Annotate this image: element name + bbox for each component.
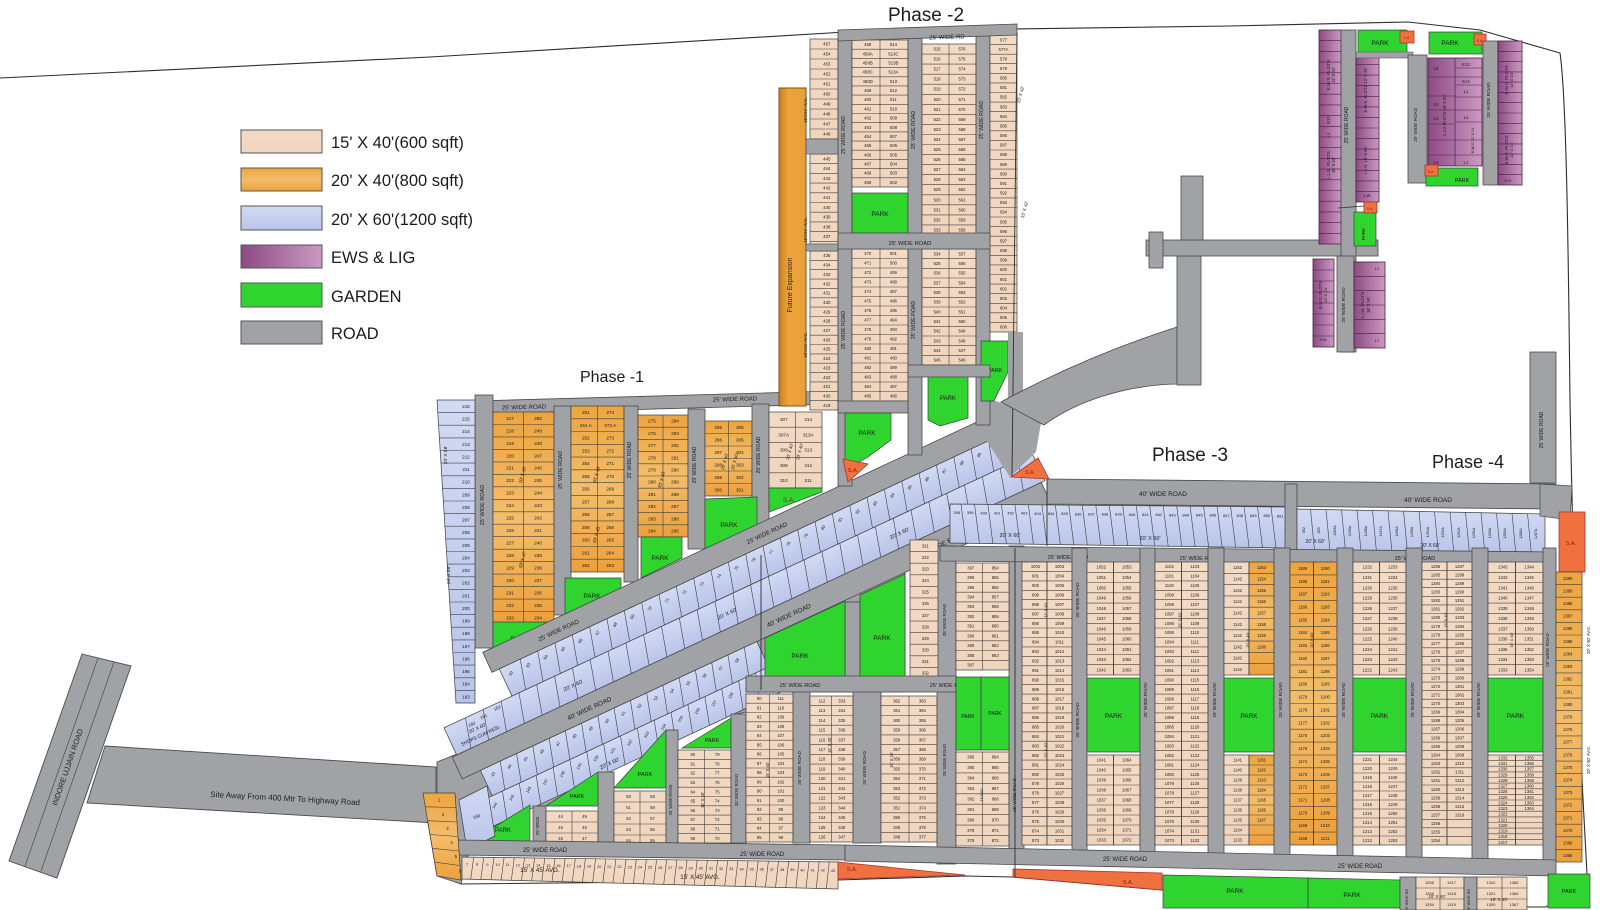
svg-text:1157: 1157 [1257,611,1267,616]
svg-text:584: 584 [1000,114,1008,119]
svg-text:25' WIDE ROAD: 25' WIDE ROAD [480,485,486,526]
svg-text:443: 443 [823,176,831,181]
svg-text:66: 66 [690,808,695,813]
svg-text:1317: 1317 [1447,880,1457,885]
svg-text:220: 220 [506,453,514,458]
svg-text:15' X 45' AVG.: 15' X 45' AVG. [520,867,560,874]
svg-text:251 A: 251 A [580,423,593,428]
svg-text:12' X 24': 12' X 24' [1509,72,1514,88]
svg-text:1223: 1223 [1363,657,1373,662]
svg-text:379: 379 [967,828,975,833]
svg-text:848: 848 [1236,513,1243,518]
svg-text:1238: 1238 [1388,616,1398,621]
svg-text:388: 388 [967,653,975,658]
svg-text:1044: 1044 [1097,647,1107,652]
svg-text:327: 327 [922,613,930,618]
svg-text:873: 873 [1032,838,1040,843]
svg-text:S.A.: S.A. [1367,207,1373,211]
svg-text:25' WIDE ROAD: 25' WIDE ROAD [1476,682,1482,718]
svg-text:563: 563 [959,177,967,182]
svg-text:564: 564 [959,167,967,172]
svg-text:374: 374 [919,805,927,810]
svg-text:274: 274 [606,410,614,415]
svg-text:31: 31 [709,867,713,871]
svg-text:1240: 1240 [1388,637,1398,642]
svg-text:1168: 1168 [1298,836,1308,841]
svg-text:861: 861 [992,633,1000,638]
svg-text:444: 444 [823,166,831,171]
svg-text:226: 226 [506,528,514,533]
svg-text:1325: 1325 [1498,795,1508,800]
svg-text:1186: 1186 [1298,605,1308,610]
svg-text:275: 275 [648,419,656,424]
svg-text:1269: 1269 [1431,710,1441,715]
svg-text:119: 119 [819,767,826,772]
svg-text:102: 102 [777,779,785,784]
svg-text:1020: 1020 [1055,725,1065,730]
svg-text:1090: 1090 [1165,677,1175,682]
svg-text:1333: 1333 [1498,668,1508,673]
svg-text:244: 244 [534,491,542,496]
svg-text:842: 842 [1156,512,1163,517]
svg-text:83: 83 [757,724,762,729]
svg-text:501: 501 [890,251,898,256]
svg-text:1195: 1195 [1321,630,1331,635]
svg-text:1164: 1164 [1257,788,1267,793]
svg-text:1115: 1115 [1190,677,1199,682]
svg-text:26: 26 [658,866,662,870]
svg-text:12' X 24': 12' X 24' [1323,287,1328,303]
svg-text:1351: 1351 [1525,637,1535,642]
svg-text:400: 400 [980,510,987,515]
svg-text:L15: L15 [1364,193,1372,198]
svg-text:285: 285 [671,529,679,534]
svg-text:309: 309 [780,463,788,468]
svg-text:107: 107 [777,733,785,738]
svg-text:510: 510 [890,106,898,111]
svg-text:1218: 1218 [1363,784,1373,789]
svg-text:354: 354 [893,776,901,781]
svg-text:25' WIDE ROAD: 25' WIDE ROAD [841,116,847,154]
svg-text:1258: 1258 [1431,804,1441,809]
svg-text:569: 569 [959,117,967,122]
svg-text:1183: 1183 [1298,643,1308,648]
svg-text:859: 859 [992,614,1000,619]
svg-text:1083: 1083 [1165,744,1175,749]
svg-text:1023: 1023 [1055,753,1065,758]
svg-text:338: 338 [838,747,846,752]
svg-text:526: 526 [934,157,942,162]
svg-text:248: 248 [534,441,542,446]
svg-text:34: 34 [739,867,743,871]
svg-text:117: 117 [819,747,826,752]
svg-text:506: 506 [890,143,898,148]
svg-text:15' X 40': 15' X 40' [1043,602,1048,618]
svg-text:1282: 1282 [1431,598,1441,603]
svg-text:357: 357 [893,747,901,752]
svg-text:1252: 1252 [1388,829,1398,834]
svg-text:79: 79 [715,752,720,757]
svg-text:1306: 1306 [1455,727,1465,732]
svg-text:484: 484 [864,384,872,389]
svg-text:1293: 1293 [1455,615,1465,620]
svg-text:472: 472 [864,270,872,275]
svg-text:87: 87 [757,761,762,766]
svg-text:PARK: PARK [873,635,891,642]
svg-text:536: 536 [934,271,942,276]
svg-text:891: 891 [1032,668,1040,673]
svg-text:25' WIDE ROAD: 25' WIDE ROAD [668,785,673,816]
svg-text:1243: 1243 [1388,668,1398,673]
svg-text:353: 353 [893,786,901,791]
svg-text:587: 587 [1000,143,1008,148]
svg-text:1331: 1331 [1498,761,1508,766]
svg-text:1081: 1081 [1165,762,1175,767]
svg-text:888: 888 [1032,696,1040,701]
svg-text:1095: 1095 [1165,630,1175,635]
svg-text:283: 283 [648,516,656,521]
svg-text:78: 78 [715,761,720,766]
svg-text:109: 109 [777,715,785,720]
svg-text:514: 514 [890,42,898,47]
svg-text:115: 115 [819,728,826,733]
svg-text:62: 62 [690,771,695,776]
svg-text:15'X43' AVG.: 15'X43' AVG. [803,332,808,358]
svg-text:589: 589 [1000,162,1008,167]
svg-text:577A: 577A [999,47,1009,52]
svg-text:19: 19 [587,865,591,869]
svg-text:1287A: 1287A [1534,528,1538,539]
svg-text:1318: 1318 [1447,891,1457,896]
svg-text:1069: 1069 [1122,808,1132,813]
svg-text:1289: 1289 [1455,581,1465,586]
svg-text:296: 296 [714,437,722,442]
svg-text:238: 238 [534,566,542,571]
svg-text:421: 421 [823,384,831,389]
svg-text:1297: 1297 [1455,650,1465,655]
svg-text:838: 838 [1102,512,1109,517]
svg-text:1265: 1265 [1431,744,1441,749]
svg-text:1166: 1166 [1257,808,1267,813]
svg-text:523: 523 [934,127,942,132]
svg-text:449: 449 [823,102,831,107]
svg-text:198: 198 [462,631,470,636]
svg-text:195: 195 [462,669,470,674]
svg-text:574: 574 [959,67,967,72]
svg-text:1266: 1266 [1431,735,1441,740]
svg-text:213: 213 [462,442,470,447]
svg-text:20' X 50' AVG.: 20' X 50' AVG. [1586,746,1591,774]
svg-text:1184: 1184 [1298,630,1308,635]
svg-text:1286: 1286 [1431,564,1441,569]
svg-text:99: 99 [778,807,783,812]
svg-text:868: 868 [992,797,1000,802]
svg-text:860: 860 [992,624,1000,629]
svg-text:113: 113 [819,708,826,713]
svg-text:1277: 1277 [1431,641,1441,646]
svg-text:25' WIDE ROAD: 25' WIDE ROAD [841,311,847,349]
svg-text:371: 371 [919,776,927,781]
svg-text:106: 106 [777,742,785,747]
svg-text:1004: 1004 [1055,574,1065,579]
svg-text:50: 50 [626,794,631,799]
svg-text:1137: 1137 [1233,798,1243,803]
svg-text:435: 435 [823,253,831,258]
svg-text:1098: 1098 [1165,602,1175,607]
svg-text:1242: 1242 [1388,657,1398,662]
svg-text:S.A.: S.A. [1123,880,1134,886]
svg-text:1357: 1357 [1525,767,1535,772]
svg-text:507: 507 [890,134,898,139]
svg-text:512: 512 [890,88,898,93]
svg-text:872: 872 [992,838,1000,843]
svg-text:440: 440 [823,205,831,210]
svg-text:606: 606 [1000,325,1008,330]
svg-text:1079: 1079 [1165,781,1175,786]
svg-text:15' X 40': 15' X 40' [1043,742,1048,758]
svg-text:59: 59 [650,794,655,799]
svg-text:865: 865 [992,765,1000,770]
svg-text:44: 44 [558,814,563,819]
svg-text:429: 429 [823,309,831,314]
svg-text:25' WIDE ROAD: 25' WIDE ROAD [1103,857,1148,863]
svg-text:439: 439 [823,215,831,220]
svg-text:855: 855 [992,575,1000,580]
svg-text:1337: 1337 [1498,626,1508,631]
svg-text:273 A: 273 A [604,423,617,428]
svg-text:1316: 1316 [1455,813,1465,818]
svg-text:1105: 1105 [1190,583,1200,588]
svg-text:1373: 1373 [1563,790,1573,795]
svg-text:25' WIDE ROAD: 25' WIDE ROAD [1212,682,1218,718]
svg-text:48: 48 [582,825,587,830]
svg-text:513C: 513C [888,51,898,56]
svg-text:1289A: 1289A [1503,528,1507,539]
svg-text:1018: 1018 [1055,706,1065,711]
svg-text:45: 45 [558,825,563,830]
svg-text:369: 369 [919,757,927,762]
svg-text:894: 894 [1032,640,1040,645]
svg-text:227: 227 [506,541,514,546]
svg-text:370: 370 [919,767,927,772]
svg-text:877: 877 [1032,800,1040,805]
svg-text:385: 385 [967,765,975,770]
svg-text:91: 91 [757,798,762,803]
svg-text:880: 880 [1032,772,1040,777]
svg-text:544: 544 [934,348,942,353]
svg-text:1017: 1017 [1055,696,1065,701]
svg-text:1051: 1051 [1097,575,1107,580]
svg-text:25' WIDE ROAD: 25' WIDE ROAD [1545,632,1550,666]
svg-text:513: 513 [890,79,898,84]
svg-text:1059: 1059 [1122,626,1132,631]
svg-text:482: 482 [864,365,872,370]
svg-text:336: 336 [838,728,846,733]
svg-text:L.I.G PLOTS 18' X 50': L.I.G PLOTS 18' X 50' [1442,94,1447,135]
svg-text:1162: 1162 [1257,768,1267,773]
svg-text:428: 428 [823,319,831,324]
svg-text:590: 590 [1000,171,1008,176]
svg-text:259: 259 [582,525,590,530]
svg-text:108: 108 [777,724,785,729]
svg-text:1085: 1085 [1165,725,1175,730]
svg-text:340: 340 [838,767,846,772]
svg-text:234: 234 [534,615,542,620]
svg-text:321: 321 [922,543,930,548]
svg-text:1230: 1230 [1363,585,1373,590]
svg-text:1206: 1206 [1321,772,1331,777]
svg-text:605: 605 [1000,315,1008,320]
svg-text:1158: 1158 [1257,622,1267,627]
svg-text:581: 581 [1000,85,1008,90]
svg-text:20' X 40'(800 sqft): 20' X 40'(800 sqft) [331,172,464,190]
svg-text:206: 206 [462,530,470,535]
svg-text:1114: 1114 [1190,668,1199,673]
svg-text:1225: 1225 [1363,637,1373,642]
svg-text:1288A: 1288A [1519,528,1523,539]
svg-text:567: 567 [959,137,967,142]
svg-text:333: 333 [838,698,846,703]
svg-text:307A: 307A [778,432,790,437]
svg-text:457: 457 [823,42,831,47]
svg-text:1386: 1386 [1563,626,1573,631]
svg-text:498: 498 [890,280,898,285]
svg-text:314: 314 [804,417,812,422]
svg-text:345: 345 [838,815,846,820]
svg-text:420: 420 [823,394,831,399]
svg-text:297: 297 [714,450,722,455]
svg-text:867: 867 [992,786,1000,791]
svg-text:597: 597 [1000,239,1008,244]
svg-text:509: 509 [890,116,898,121]
svg-text:7: 7 [466,863,468,867]
svg-text:1193: 1193 [1321,605,1331,610]
svg-text:1304: 1304 [1455,710,1465,715]
svg-text:25' WIDE ROAD: 25' WIDE ROAD [1075,702,1081,738]
svg-text:493: 493 [890,327,898,332]
svg-text:394: 394 [967,595,975,600]
svg-text:272: 272 [606,448,614,453]
svg-text:1173: 1173 [1298,772,1308,777]
svg-text:560: 560 [959,207,967,212]
svg-text:372: 372 [919,786,927,791]
svg-text:368: 368 [919,747,927,752]
svg-text:1027: 1027 [1055,791,1065,796]
svg-text:1169: 1169 [1298,823,1308,828]
svg-text:566: 566 [959,147,967,152]
svg-text:1329: 1329 [1498,772,1508,777]
svg-text:212: 212 [462,454,470,459]
svg-text:267: 267 [606,512,614,517]
svg-text:381: 381 [967,807,975,812]
svg-text:556: 556 [959,261,967,266]
svg-text:1220: 1220 [1363,766,1373,771]
svg-text:1185: 1185 [1298,617,1308,622]
svg-text:305: 305 [736,437,744,442]
svg-text:516: 516 [934,57,942,62]
svg-text:202: 202 [462,581,470,586]
svg-text:892: 892 [1032,659,1040,664]
svg-text:PARK: PARK [961,714,975,720]
svg-text:1052: 1052 [1097,565,1107,570]
svg-text:1384: 1384 [1563,651,1573,656]
svg-text:492: 492 [890,337,898,342]
svg-text:883: 883 [1032,744,1040,749]
svg-text:427: 427 [823,328,831,333]
svg-text:490: 490 [890,356,898,361]
svg-text:485: 485 [864,394,872,399]
svg-text:25' WIDE ROAD: 25' WIDE ROAD [627,441,633,478]
svg-text:1279: 1279 [1431,624,1441,629]
svg-text:845: 845 [1196,513,1203,518]
svg-text:1255: 1255 [1431,830,1441,835]
svg-text:585: 585 [1000,124,1008,129]
svg-text:1035: 1035 [1097,818,1107,823]
svg-text:1133: 1133 [1233,838,1243,843]
svg-text:255: 255 [582,474,590,479]
svg-text:1234: 1234 [1388,575,1398,580]
svg-text:1305: 1305 [1455,718,1465,723]
svg-text:241: 241 [534,528,542,533]
svg-text:594: 594 [1000,210,1008,215]
svg-text:25' WIDE ROAD: 25' WIDE ROAD [1410,682,1416,718]
svg-text:342: 342 [838,786,846,791]
svg-text:211: 211 [462,467,470,472]
svg-text:874: 874 [1032,828,1040,833]
svg-text:1161: 1161 [1257,758,1267,763]
svg-text:PARK: PARK [1371,713,1389,720]
svg-text:1192: 1192 [1321,592,1331,597]
svg-text:386: 386 [967,755,975,760]
svg-text:885: 885 [1032,725,1040,730]
svg-text:1106: 1106 [1190,593,1200,598]
svg-text:1165: 1165 [1257,798,1267,803]
svg-text:1283: 1283 [1431,590,1441,595]
svg-text:850: 850 [1263,513,1270,518]
svg-text:870: 870 [992,817,1000,822]
svg-text:1260: 1260 [1431,787,1441,792]
svg-text:94: 94 [757,826,762,831]
svg-text:1343: 1343 [1498,565,1508,570]
svg-text:1256: 1256 [1425,880,1435,885]
svg-text:PARK: PARK [791,653,809,660]
svg-text:1055: 1055 [1122,585,1132,590]
svg-text:348: 348 [893,835,901,840]
svg-text:123: 123 [819,805,827,810]
svg-text:1009: 1009 [1055,621,1065,626]
svg-text:1210: 1210 [1321,823,1331,828]
svg-text:1293A: 1293A [1441,527,1445,538]
svg-text:L7: L7 [1375,338,1380,343]
svg-text:350: 350 [893,815,901,820]
svg-text:266: 266 [606,525,614,530]
svg-text:1154: 1154 [1257,577,1267,582]
svg-text:1249: 1249 [1388,802,1398,807]
svg-text:1070: 1070 [1122,818,1132,823]
svg-text:265: 265 [606,538,614,543]
svg-text:343: 343 [838,796,846,801]
svg-text:1125: 1125 [1190,772,1200,777]
svg-text:1208: 1208 [1321,798,1331,803]
svg-text:1012: 1012 [1055,649,1065,654]
svg-text:64: 64 [690,789,695,794]
svg-text:1142: 1142 [1233,577,1243,582]
svg-text:598: 598 [1000,248,1008,253]
svg-text:1338: 1338 [1498,616,1508,621]
svg-text:25' WIDE ROAD: 25' WIDE ROAD [862,750,867,784]
svg-text:572: 572 [959,87,967,92]
svg-text:554: 554 [959,280,967,285]
